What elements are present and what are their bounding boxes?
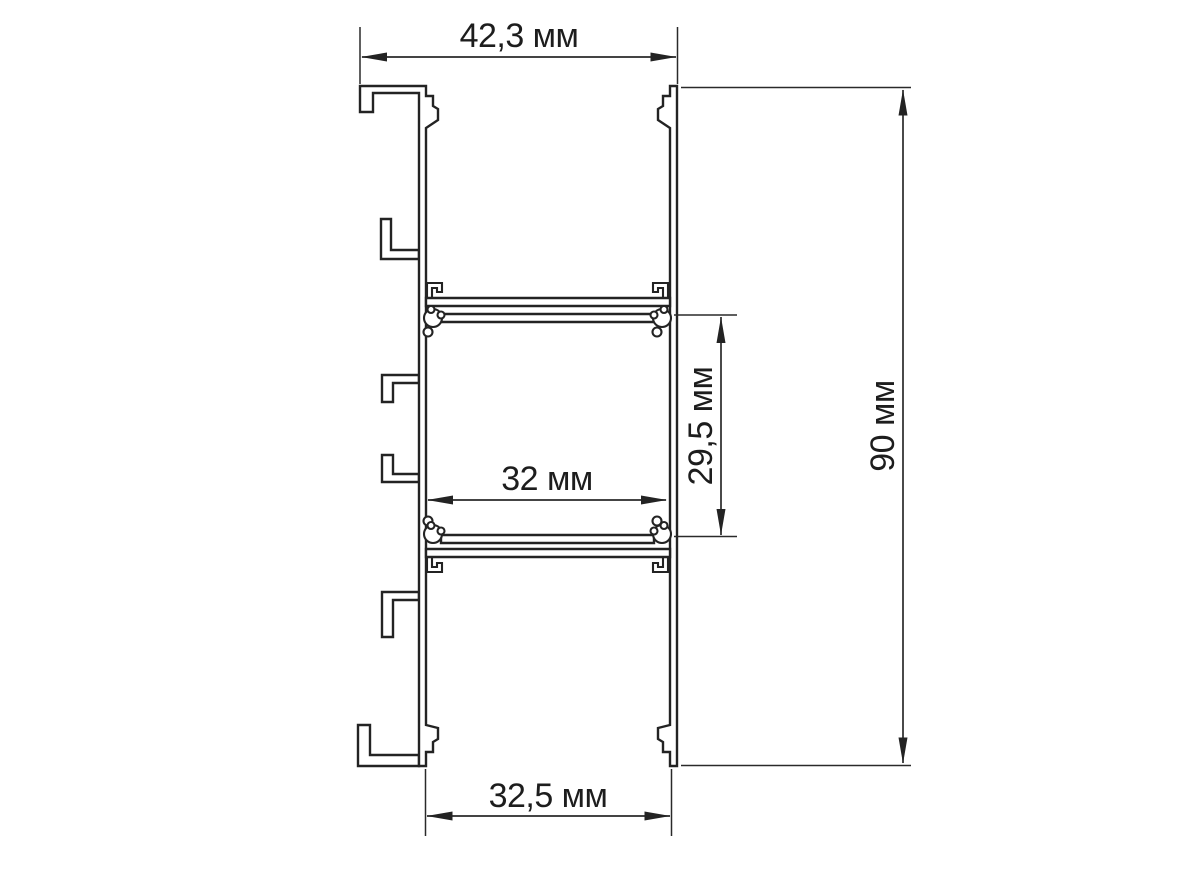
- screw-boss-bottom-left: [424, 517, 445, 544]
- dimension-label-cavity-width: 32 мм: [501, 460, 593, 498]
- mount-hook-4: [382, 592, 419, 637]
- dimension-label-cavity-height: 29,5 мм: [682, 367, 720, 486]
- left-wall: [360, 86, 438, 766]
- arrow-up-icon: [717, 317, 726, 343]
- arrow-down-icon: [899, 738, 908, 764]
- mount-hook-5: [358, 725, 419, 766]
- dimension-cavity-width: 32 мм: [427, 460, 667, 505]
- arrow-up-icon: [899, 90, 908, 116]
- arrow-down-icon: [717, 509, 726, 535]
- dimension-bottom-width: 32,5 мм: [426, 769, 672, 836]
- screw-boss-bottom-right: [651, 517, 672, 544]
- profile-outline: [358, 86, 677, 766]
- dimension-top-width: 42,3 мм: [360, 17, 678, 84]
- cavity-bottom-plate: [441, 535, 654, 543]
- arrow-left-icon: [361, 53, 387, 62]
- arrow-left-icon: [427, 812, 453, 821]
- upper-shelf-clip-left: [427, 283, 442, 298]
- aluminium-profile-drawing: 42,3 мм 90 мм 29,5 мм 32 мм 32,5 мм: [0, 0, 1200, 869]
- mount-hook-1: [381, 219, 419, 259]
- mount-hook-2: [382, 375, 419, 402]
- right-wall: [658, 86, 677, 766]
- lower-shelf-clip-left: [427, 557, 442, 572]
- screw-boss-top-right: [651, 306, 672, 337]
- upper-shelf: [426, 298, 670, 306]
- cavity-top-plate: [441, 314, 654, 322]
- arrow-right-icon: [645, 812, 671, 821]
- mount-hook-3: [382, 455, 419, 482]
- dimension-label-overall-height: 90 мм: [864, 380, 902, 472]
- lower-shelf-clip-right: [653, 557, 668, 572]
- dimension-cavity-height: 29,5 мм: [674, 315, 737, 537]
- dimension-label-bottom-width: 32,5 мм: [489, 777, 608, 815]
- dimension-label-top-width: 42,3 мм: [460, 17, 579, 55]
- upper-shelf-clip-right: [653, 283, 668, 298]
- technical-drawing-canvas: 42,3 мм 90 мм 29,5 мм 32 мм 32,5 мм: [0, 0, 1200, 869]
- screw-boss-top-left: [424, 306, 445, 337]
- lower-shelf: [426, 549, 670, 557]
- arrow-right-icon: [641, 496, 667, 505]
- arrow-right-icon: [651, 53, 677, 62]
- arrow-left-icon: [427, 496, 453, 505]
